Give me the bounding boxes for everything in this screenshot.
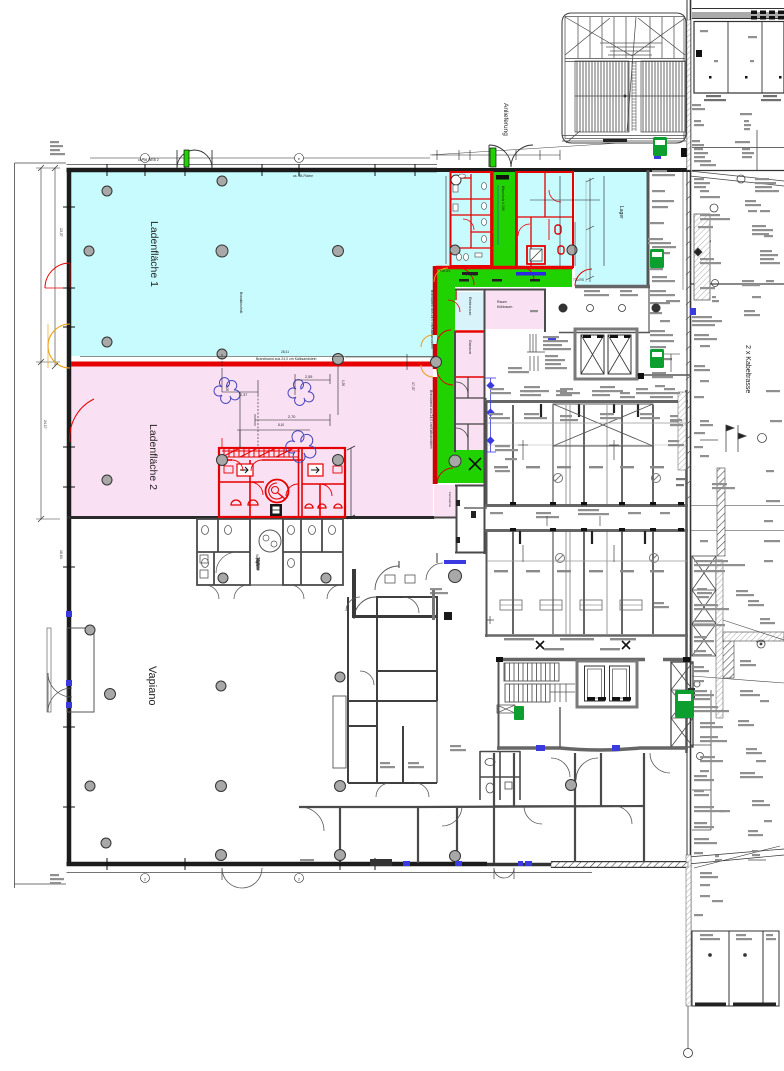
svg-text:Brandabschnitt: Brandabschnitt [239,292,243,313]
svg-text:24,17: 24,17 [43,420,47,429]
svg-text:Brandwand aus 24,0 cm Kalksand: Brandwand aus 24,0 cm Kalksandstein [430,290,434,349]
svg-text:28,41: 28,41 [281,350,289,354]
svg-text:18,64: 18,64 [59,550,63,559]
svg-text:Gasraum: Gasraum [468,340,472,354]
svg-text:Vapiano: Vapiano [255,554,259,566]
svg-text:ca. SB-Fläche: ca. SB-Fläche [293,174,313,178]
svg-text:Vapiano: Vapiano [146,666,158,706]
svg-text:17,37: 17,37 [411,382,415,391]
svg-text:F90-AB: F90-AB [466,273,478,277]
svg-text:2,70: 2,70 [288,415,295,419]
svg-text:T30-RS: T30-RS [573,278,584,282]
svg-text:2: 2 [298,878,300,882]
svg-text:Kühlraum: Kühlraum [497,305,512,309]
svg-text:13,37: 13,37 [59,228,63,237]
svg-text:e: e [142,157,144,161]
svg-text:2 x Kabeltrasse: 2 x Kabeltrasse [744,345,751,393]
svg-text:Blitzschutz lt. DIN: Blitzschutz lt. DIN [501,186,505,212]
svg-text:Raum: Raum [497,300,507,304]
svg-text:1,50: 1,50 [341,380,345,386]
svg-text:Ladenfläche 2: Ladenfläche 2 [147,424,159,490]
svg-text:8,10: 8,10 [278,423,284,427]
svg-text:Fernwärme: Fernwärme [448,492,452,508]
svg-text:Elektroraum: Elektroraum [468,297,472,315]
svg-text:Brandwand aus 24,0 cm Kalksand: Brandwand aus 24,0 cm Kalksandstein [429,390,433,449]
svg-text:Lager: Lager [618,206,624,219]
svg-text:Anlieferung: Anlieferung [502,103,509,136]
svg-text:2,55: 2,55 [305,375,312,379]
svg-text:e: e [298,157,300,161]
svg-text:T30-RS: T30-RS [440,269,450,273]
svg-text:Brandwand aus 24,0 cm Kalksand: Brandwand aus 24,0 cm Kalksandstein [256,357,317,361]
svg-text:2: 2 [144,878,146,882]
svg-text:2,37: 2,37 [240,393,247,397]
svg-text:2,00: 2,00 [225,385,229,391]
svg-text:Ladenfläche 1: Ladenfläche 1 [148,221,160,287]
